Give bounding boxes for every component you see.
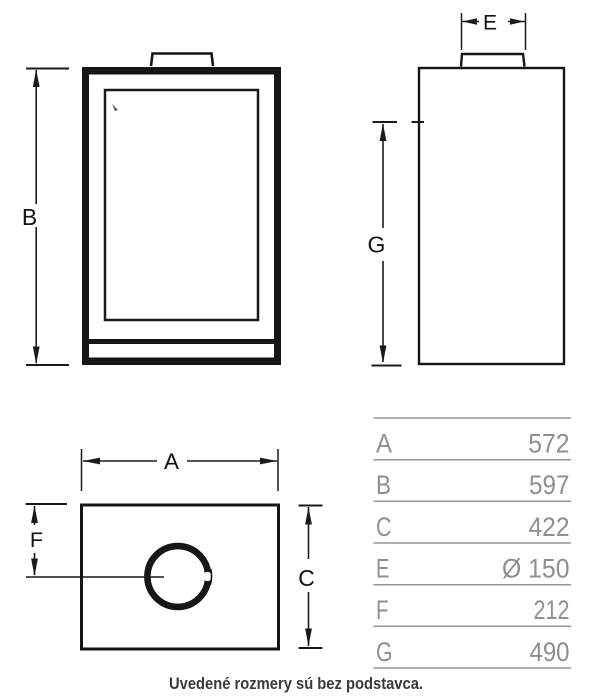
svg-text:B: B bbox=[376, 470, 391, 500]
svg-text:Ø 150: Ø 150 bbox=[502, 554, 570, 584]
svg-text:E: E bbox=[483, 12, 497, 35]
svg-text:422: 422 bbox=[529, 512, 570, 542]
svg-text:A: A bbox=[376, 429, 392, 459]
svg-text:C: C bbox=[298, 565, 315, 591]
svg-text:G: G bbox=[368, 232, 386, 258]
svg-text:G: G bbox=[376, 637, 393, 667]
svg-text:572: 572 bbox=[528, 429, 569, 459]
svg-text:F: F bbox=[376, 595, 389, 625]
svg-text:E: E bbox=[376, 554, 390, 584]
svg-text:F: F bbox=[30, 528, 43, 552]
svg-text:212: 212 bbox=[534, 595, 570, 625]
svg-text:A: A bbox=[164, 449, 179, 474]
svg-text:B: B bbox=[22, 204, 37, 230]
svg-text:C: C bbox=[376, 512, 392, 542]
svg-text:597: 597 bbox=[529, 470, 570, 500]
svg-text:490: 490 bbox=[530, 637, 570, 667]
svg-text:Uvedené rozmery sú bez podstav: Uvedené rozmery sú bez podstavca. bbox=[169, 674, 423, 693]
